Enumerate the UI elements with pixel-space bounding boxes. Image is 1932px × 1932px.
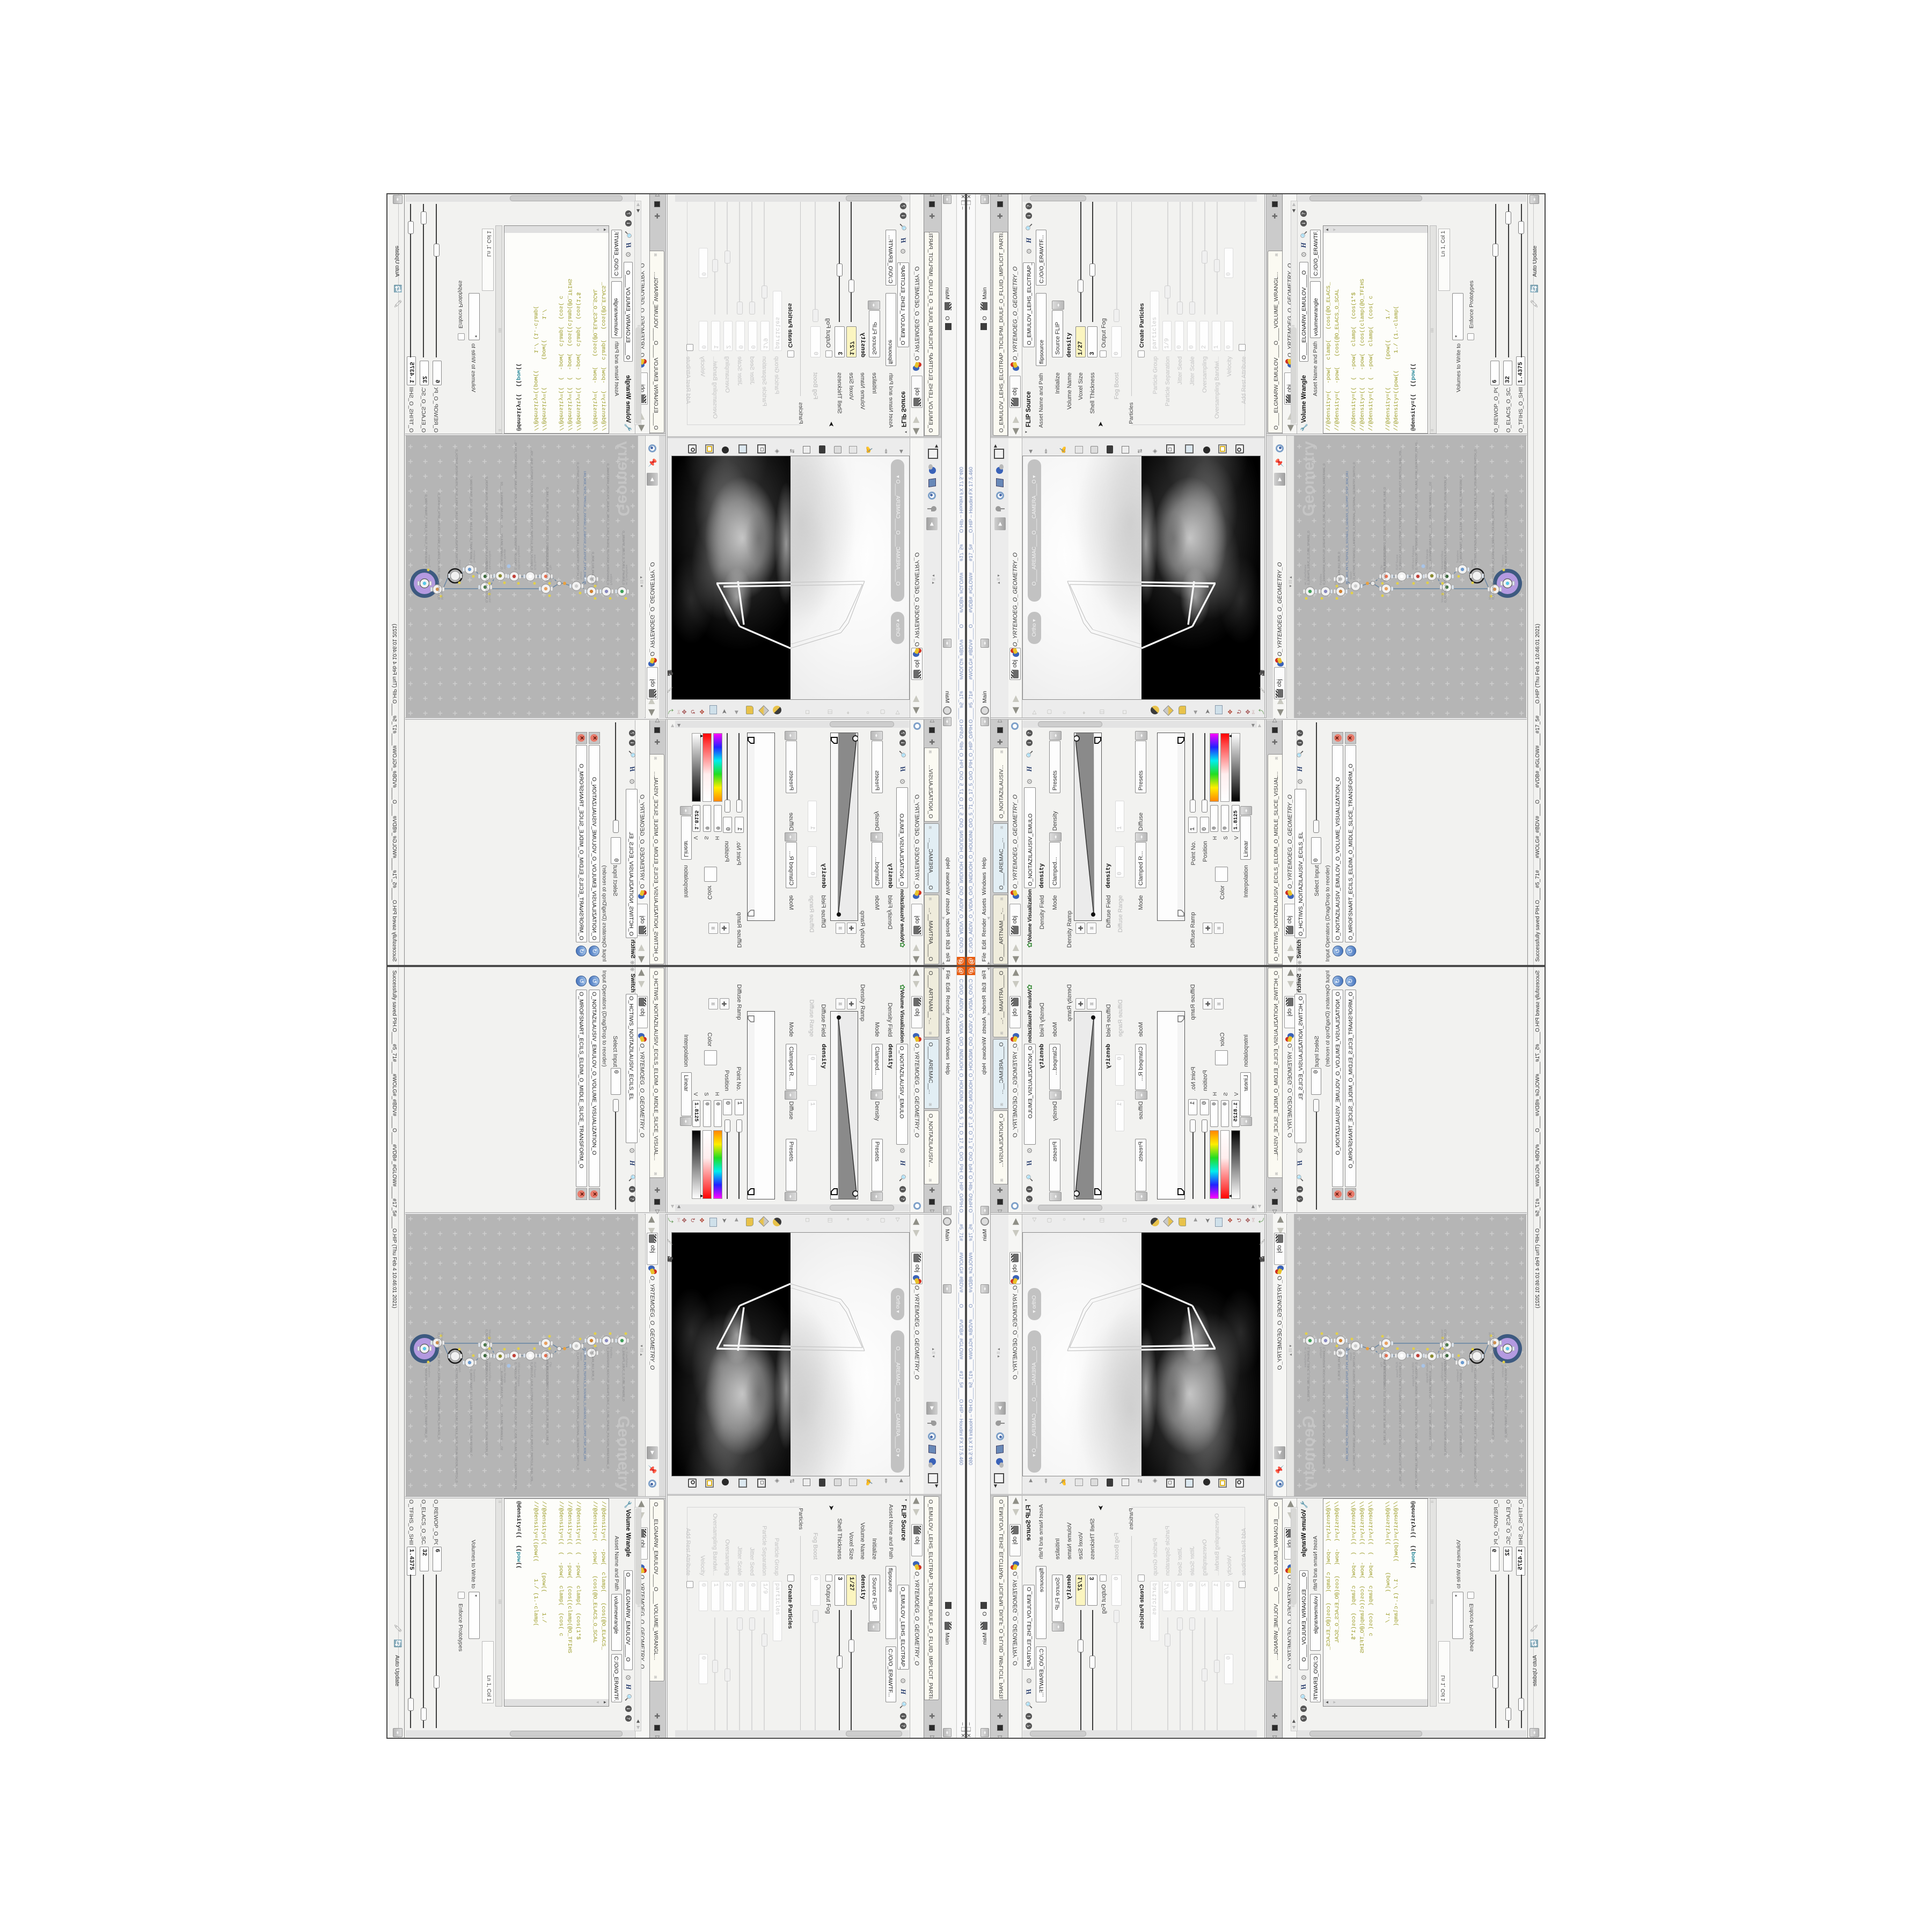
svg-text:O_SNOGLOP_YRTEMOEG_MORF_EMULOV: O_SNOGLOP_YRTEMOEG_MORF_EMULOV_BDV_O_VDB… — [1415, 1362, 1418, 1492]
svg-text:VolumeVizSlice: VolumeVizSlice — [488, 551, 491, 570]
svg-text:JBO_M03_PETS_TEPOLS_D_SOUNEG_O: JBO_M03_PETS_TEPOLS_D_SOUNEG_O_GENUSS_O_… — [583, 471, 586, 585]
svg-text:O_HCTIWS_YRTEMOEG_LANRETSE_O_I: O_HCTIWS_YRTEMOEG_LANRETSE_O_INTERNAL_EX… — [576, 1352, 579, 1470]
svg-text:Clip: Clip — [548, 1350, 552, 1355]
svg-text:O_HCTIWS_YRTEMOEG_LANRETSE_O_I: O_HCTIWS_YRTEMOEG_LANRETSE_O_INTERNAL_EX… — [1353, 462, 1356, 580]
svg-text:O_EMULOV_LEHS_ELCITRAP_TICILPM: O_EMULOV_LEHS_ELCITRAP_TICILPMI_DIULF_O_… — [530, 1362, 533, 1484]
svg-text:FLIP Source: FLIP Source — [533, 1362, 536, 1378]
svg-text:VolumeViz: VolumeViz — [488, 589, 491, 603]
svg-text:O_SNOGLOP_YRTEMOEG_MORF_EMULOV: O_SNOGLOP_YRTEMOEG_MORF_EMULOV_BDV_O_VDB… — [514, 440, 517, 570]
svg-text:VolumeViz: VolumeViz — [488, 1329, 491, 1343]
svg-text:Geometry: Geometry — [614, 1416, 632, 1491]
svg-text:an_CubeSphere: an_CubeSphere — [625, 565, 628, 585]
svg-text:O_MROFSNART_ECILS_ELDIM_O_MIDL: O_MROFSNART_ECILS_ELDIM_O_MIDLE_SLICE_TR… — [1460, 1369, 1463, 1457]
svg-text:O_EREHPS_EBUC_O_CUBE_SPHERE_O: O_EREHPS_EBUC_O_CUBE_SPHERE_O — [1307, 1347, 1311, 1401]
svg-text:O_EMASFERIW_NOGYLOP_EREHPS_EBU: O_EMASFERIW_NOGYLOP_EREHPS_EBUC_O_CUBE_S… — [1323, 1347, 1326, 1469]
svg-text:VDB from Polygons: VDB from Polygons — [517, 545, 520, 570]
svg-text:O_EMASFERIW_NOGYLOP_EREHPS_EBU: O_EMASFERIW_NOGYLOP_EREHPS_EBUC_O_CUBE_S… — [1323, 464, 1326, 586]
svg-text:O_BU_LUBJJ_DV...: O_BU_LUBJJ_DV... — [1384, 1362, 1387, 1387]
svg-text:O_MROFSNART_TLUSER_O_RESULT_TR: O_MROFSNART_TLUSER_O_RESULT_TRANSFORM_O — [424, 1365, 427, 1438]
svg-text:O_HCTIWS_NOITAZILAUSIV_ECILS_E: O_HCTIWS_NOITAZILAUSIV_ECILS_ELDIM_O_MID… — [1474, 1364, 1477, 1483]
svg-text:O_NO_EAN_BUJ_BOB_O: O_NO_EAN_BUJ_BOB_O — [1338, 552, 1341, 585]
svg-text:O_HCTIWS_NOITAZILAUSIV_ECILS_E: O_HCTIWS_NOITAZILAUSIV_ECILS_ELDIM_O_MID… — [1474, 449, 1477, 568]
svg-text:O_ECAFRUS_HTIW_EMULOV_EGREM_O_: O_ECAFRUS_HTIW_EMULOV_EGREM_O_MERGE_VOLU… — [437, 493, 440, 599]
svg-text:O_NOITAZILAUSIV_EMULOV_O...: O_NOITAZILAUSIV_EMULOV_O... — [1444, 559, 1447, 603]
svg-text:Volume Wrangle: Volume Wrangle — [503, 549, 506, 569]
svg-text:O_HCTIWS_NOITAZILAUSIV_ECILS_E: O_HCTIWS_NOITAZILAUSIV_ECILS_ELDIM_O_MID… — [455, 449, 458, 568]
svg-text:Switch: Switch — [579, 572, 582, 580]
svg-text:an_CubeSphere: an_CubeSphere — [625, 1347, 628, 1367]
svg-text:O_BU_LUBJJ_DV...: O_BU_LUBJJ_DV... — [545, 545, 548, 570]
svg-text:O_EMULOV_LEHS_ELCITRAP_TICILPM: O_EMULOV_LEHS_ELCITRAP_TICILPMI_DIULF_O_… — [530, 448, 533, 570]
svg-text:O____ELGNARW_EMULOV____O____VO: O____ELGNARW_EMULOV____O____VOLUME_WRANG… — [1429, 482, 1432, 569]
svg-text:Transform: Transform — [427, 555, 430, 567]
svg-text:Geometry: Geometry — [1300, 441, 1318, 516]
svg-text:O_EMULOV_LEHS_ELCITRAP_TICILPM: O_EMULOV_LEHS_ELCITRAP_TICILPMI_DIULF_O_… — [1399, 448, 1402, 570]
svg-text:O_HCTIWS_YRTEMOEG_LANRETSE_O_I: O_HCTIWS_YRTEMOEG_LANRETSE_O_INTERNAL_EX… — [1353, 1352, 1356, 1470]
svg-text:O_MROFSNART_ECILS_ELDIM_O_MIDL: O_MROFSNART_ECILS_ELDIM_O_MIDLE_SLICE_TR… — [1460, 476, 1463, 563]
svg-text:PolyWire: PolyWire — [609, 574, 612, 585]
svg-text:O_EMASFERIW_NOGYLOP_EREHPS_EBU: O_EMASFERIW_NOGYLOP_EREHPS_EBUC_O_CUBE_S… — [606, 464, 609, 586]
svg-text:VDB from Polygons: VDB from Polygons — [517, 1362, 520, 1387]
svg-text:Volume Wrangle: Volume Wrangle — [503, 1363, 506, 1383]
svg-text:O_MROFSNART_ECILS_ELDIM_O_MIDL: O_MROFSNART_ECILS_ELDIM_O_MIDLE_SLICE_TR… — [469, 1369, 472, 1457]
svg-text:O_EMASFERIW_NOGYLOP_EREHPS_EBU: O_EMASFERIW_NOGYLOP_EREHPS_EBUC_O_CUBE_S… — [606, 1347, 609, 1469]
svg-text:O____ELGNARW_EMULOV____O____VO: O____ELGNARW_EMULOV____O____VOLUME_WRANG… — [500, 1363, 503, 1450]
svg-text:O_NO_EAN_BUJ_BOB_O: O_NO_EAN_BUJ_BOB_O — [1338, 1347, 1341, 1380]
svg-text:JBO_M03_PETS_TEPOLS_D_SOUNEG_O: JBO_M03_PETS_TEPOLS_D_SOUNEG_O_GENUSS_O_… — [1346, 471, 1349, 585]
svg-text:Merge: Merge — [440, 1333, 443, 1341]
svg-text:O_HCTIWS_NOITAZILAUSIV_ECILS_E: O_HCTIWS_NOITAZILAUSIV_ECILS_ELDIM_O_MID… — [455, 1364, 458, 1483]
svg-text:O_MROFSNART_ECILS_ELDIM_O_MIDL: O_MROFSNART_ECILS_ELDIM_O_MIDLE_SLICE_TR… — [469, 476, 472, 563]
svg-text:JBO_M03_PETS_TEPOLS_D_SOUNEG_O: JBO_M03_PETS_TEPOLS_D_SOUNEG_O_GENUSS_O_… — [583, 1347, 586, 1461]
svg-text:O_ECAFRUS_HTIW_EMULOV_EGREM_O_: O_ECAFRUS_HTIW_EMULOV_EGREM_O_MERGE_VOLU… — [437, 1333, 440, 1439]
svg-text:O_EREHPS_EBUC_O_CUBE_SPHERE_O: O_EREHPS_EBUC_O_CUBE_SPHERE_O — [621, 1347, 625, 1401]
svg-text:JBO_M03_PETS_TEPOLS_D_SOUNEG_O: JBO_M03_PETS_TEPOLS_D_SOUNEG_O_GENUSS_O_… — [1346, 1347, 1349, 1461]
svg-text:Transform: Transform — [472, 1369, 475, 1381]
svg-text:Geometry: Geometry — [614, 441, 632, 516]
svg-text:Merge: Merge — [440, 591, 443, 599]
svg-text:Switch: Switch — [458, 1364, 461, 1372]
svg-text:Clip: Clip — [548, 1362, 552, 1367]
svg-text:O_MROFSNART_TLUSER_O_RESULT_TR: O_MROFSNART_TLUSER_O_RESULT_TRANSFORM_O — [1505, 494, 1508, 567]
svg-text:O_NO_EAN_BUJ_BOB_O: O_NO_EAN_BUJ_BOB_O — [591, 1347, 594, 1380]
svg-text:O_NOITAZILAUSIV_ECILS_ELDIM_O_: O_NOITAZILAUSIV_ECILS_ELDIM_O_MIDLE_SLIC… — [1444, 1362, 1447, 1455]
svg-text:O_ECAFRUS_HTIW_EMULOV_EGREM_O_: O_ECAFRUS_HTIW_EMULOV_EGREM_O_MERGE_VOLU… — [1492, 1333, 1495, 1439]
svg-text:O_BU_LUBJJ_DV...: O_BU_LUBJJ_DV... — [1384, 545, 1387, 570]
svg-text:Clip: Clip — [548, 565, 552, 570]
svg-text:O_NOITAZILAUSIV_EMULOV_O...: O_NOITAZILAUSIV_EMULOV_O... — [1444, 1329, 1447, 1373]
svg-text:O_EREHPS_EBUC_O_CUBE_SPHERE_O: O_EREHPS_EBUC_O_CUBE_SPHERE_O — [621, 531, 625, 585]
svg-text:O_NOITAZILAUSIV_EMULOV_O...: O_NOITAZILAUSIV_EMULOV_O... — [485, 559, 488, 603]
svg-text:O_NO_EAN_BUJ_BOB_O: O_NO_EAN_BUJ_BOB_O — [591, 552, 594, 585]
svg-text:File: File — [594, 1347, 597, 1351]
svg-text:Transform: Transform — [472, 551, 475, 563]
svg-text:O_EREHPS_EBUC_O_CUBE_SPHERE_O: O_EREHPS_EBUC_O_CUBE_SPHERE_O — [1307, 531, 1311, 585]
svg-text:FLIP Source: FLIP Source — [533, 554, 536, 570]
svg-text:O_NOITAZILAUSIV_ECILS_ELDIM_O_: O_NOITAZILAUSIV_ECILS_ELDIM_O_MIDLE_SLIC… — [1444, 477, 1447, 570]
svg-text:Geometry: Geometry — [1300, 1416, 1318, 1491]
svg-text:O_EMULOV_LEHS_ELCITRAP_TICILPM: O_EMULOV_LEHS_ELCITRAP_TICILPMI_DIULF_O_… — [1399, 1362, 1402, 1484]
svg-text:O_SNOGLOP_YRTEMOEG_MORF_EMULOV: O_SNOGLOP_YRTEMOEG_MORF_EMULOV_BDV_O_VDB… — [1415, 440, 1418, 570]
svg-text:File: File — [594, 581, 597, 585]
svg-text:O____ELGNARW_EMULOV____O____VO: O____ELGNARW_EMULOV____O____VOLUME_WRANG… — [1429, 1363, 1432, 1450]
svg-text:O_MROFSNART_TLUSER_O_RESULT_TR: O_MROFSNART_TLUSER_O_RESULT_TRANSFORM_O — [1505, 1365, 1508, 1438]
svg-text:Switch: Switch — [579, 1352, 582, 1360]
svg-text:O_HCTIWS_YRTEMOEG_LANRETSE_O_I: O_HCTIWS_YRTEMOEG_LANRETSE_O_INTERNAL_EX… — [576, 462, 579, 580]
svg-text:O_SNOGLOP_YRTEMOEG_MORF_EMULOV: O_SNOGLOP_YRTEMOEG_MORF_EMULOV_BDV_O_VDB… — [514, 1362, 517, 1492]
svg-text:Transform: Transform — [427, 1365, 430, 1377]
svg-text:Clip: Clip — [548, 577, 552, 582]
svg-text:O_NOITAZILAUSIV_ECILS_ELDIM_O_: O_NOITAZILAUSIV_ECILS_ELDIM_O_MIDLE_SLIC… — [485, 477, 488, 570]
svg-text:O____ELGNARW_EMULOV____O____VO: O____ELGNARW_EMULOV____O____VOLUME_WRANG… — [500, 482, 503, 569]
svg-text:VolumeVizSlice: VolumeVizSlice — [488, 1362, 491, 1381]
svg-text:O_NOITAZILAUSIV_ECILS_ELDIM_O_: O_NOITAZILAUSIV_ECILS_ELDIM_O_MIDLE_SLIC… — [485, 1362, 488, 1455]
svg-text:Switch: Switch — [458, 560, 461, 568]
svg-text:O_NOITAZILAUSIV_EMULOV_O...: O_NOITAZILAUSIV_EMULOV_O... — [485, 1329, 488, 1373]
svg-text:O_ECAFRUS_HTIW_EMULOV_EGREM_O_: O_ECAFRUS_HTIW_EMULOV_EGREM_O_MERGE_VOLU… — [1492, 493, 1495, 599]
svg-text:O_MROFSNART_TLUSER_O_RESULT_TR: O_MROFSNART_TLUSER_O_RESULT_TRANSFORM_O — [424, 494, 427, 567]
svg-text:PolyWire: PolyWire — [609, 1347, 612, 1358]
svg-text:O_BU_LUBJJ_DV...: O_BU_LUBJJ_DV... — [545, 1362, 548, 1387]
